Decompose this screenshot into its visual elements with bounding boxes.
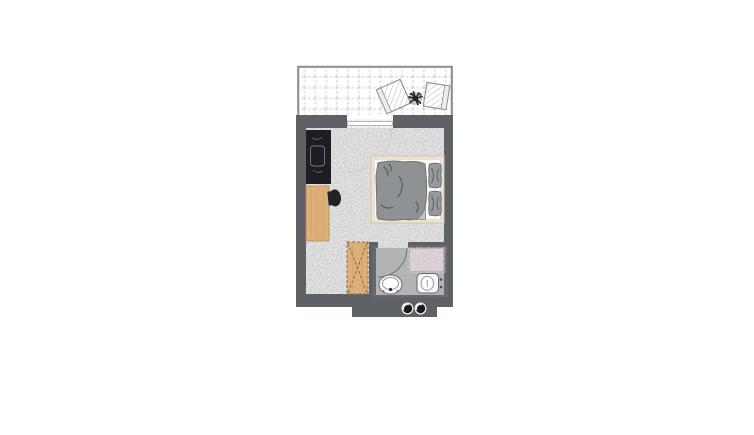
wall-bathroom-top-a	[369, 242, 378, 248]
double-bed	[371, 156, 444, 223]
wall-bathroom-top-b	[408, 242, 444, 248]
wooden-sideboard	[306, 186, 329, 241]
floorplan-svg	[0, 0, 754, 435]
toilet-icon	[417, 274, 442, 294]
pillow	[429, 163, 442, 188]
balcony	[298, 67, 452, 115]
wall-top-right	[393, 115, 453, 128]
wall-bathroom-left	[369, 242, 376, 295]
washbasin-icon	[379, 275, 402, 294]
chair-icon	[423, 82, 449, 109]
shower-mosaic	[410, 249, 444, 272]
floorplan-image	[0, 0, 754, 435]
wall-top-left	[296, 115, 347, 128]
wall-right	[444, 128, 453, 295]
plant-icon	[409, 92, 423, 106]
downlight-icon	[402, 303, 413, 314]
bathroom	[376, 248, 444, 295]
wall-bottom	[296, 294, 453, 307]
dark-cabinet	[306, 130, 331, 184]
downlight-icon	[415, 303, 426, 314]
wall-left	[296, 128, 306, 295]
wardrobe-crossed	[347, 242, 368, 294]
terrace-door	[348, 122, 393, 126]
pillow	[429, 191, 442, 216]
